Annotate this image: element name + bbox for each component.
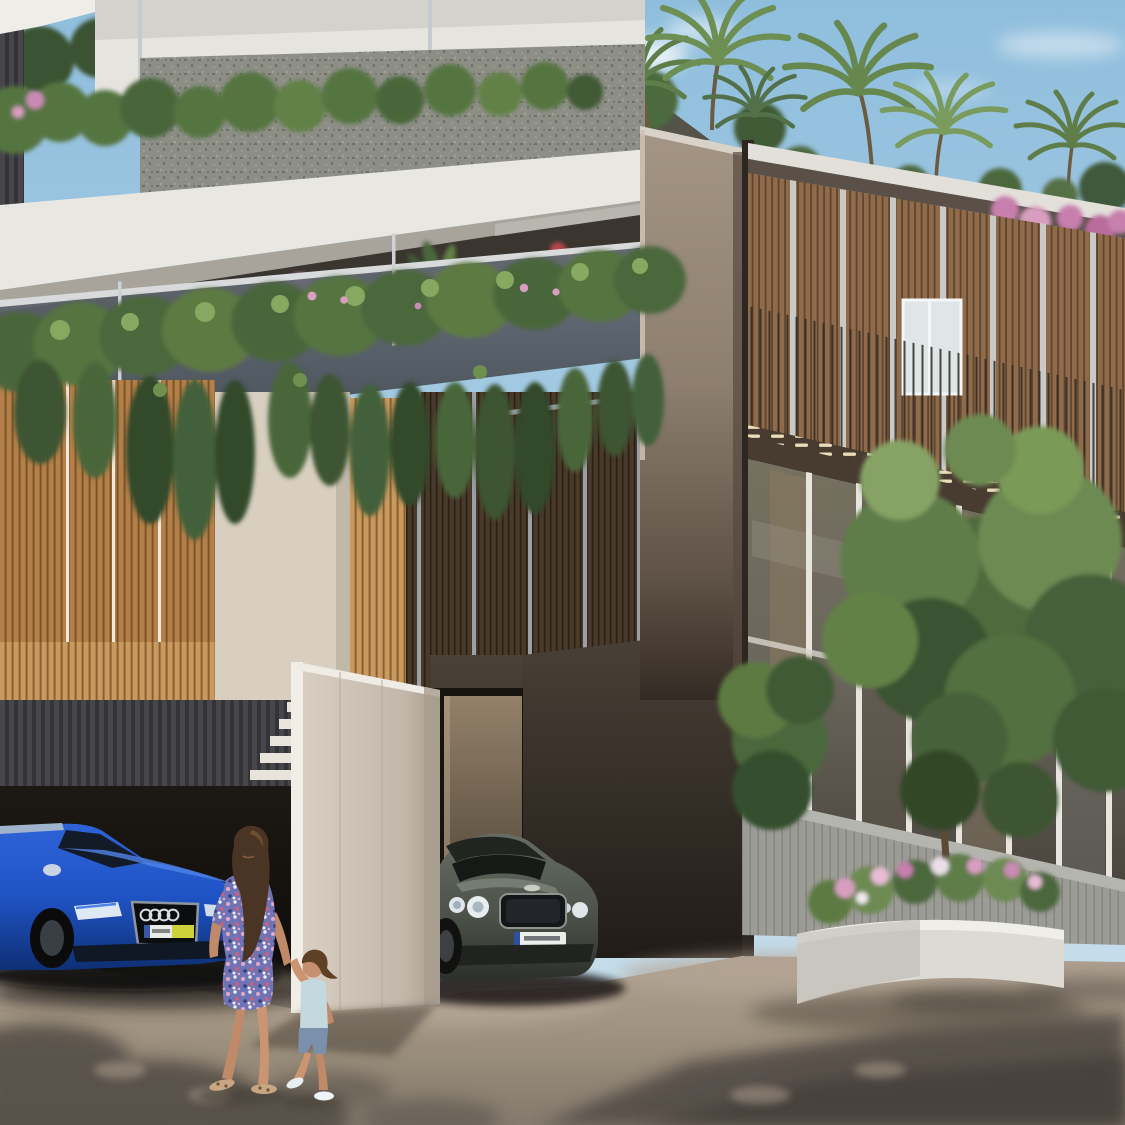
child-sneaker [314,1092,334,1101]
gold-slat-lower-band [0,642,215,702]
bentley-license-plate [514,932,566,945]
render-canvas [0,0,1125,1125]
woman-sandal [251,1084,277,1094]
ribbed-dark-band [0,700,292,790]
audi-license-plate [144,925,194,938]
audi-mirror [43,864,61,876]
architectural-render-scene: Photorealistic architectural rendering o… [0,0,1125,1125]
audi-grille [132,902,198,946]
child-top [300,979,328,1031]
audi-wheel [30,908,74,968]
bentley-badge [524,885,540,892]
